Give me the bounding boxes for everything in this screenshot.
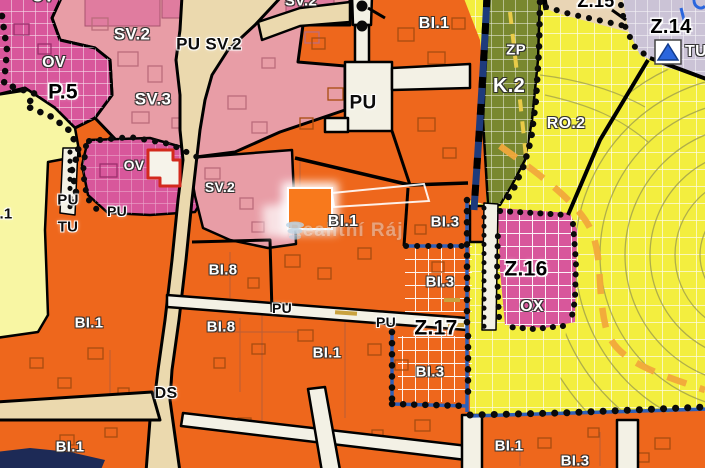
- zone-bi3-grid-2: [398, 336, 472, 402]
- tu-marker: [655, 40, 681, 64]
- map-canvas: [0, 0, 705, 468]
- zoning-map[interactable]: Realitní Ráj OV OV P.5 SV.2 PU SV.2 SV.2…: [0, 0, 705, 468]
- zone-bi3-grid-1: [405, 246, 472, 312]
